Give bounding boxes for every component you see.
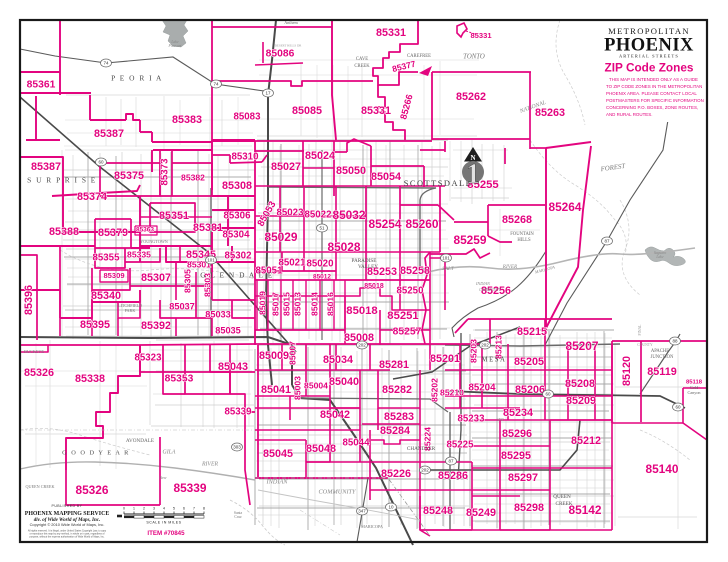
svg-text:60: 60	[545, 392, 551, 397]
svg-text:85203: 85203	[468, 339, 478, 363]
svg-text:85004: 85004	[304, 380, 328, 390]
svg-text:85309: 85309	[103, 271, 124, 280]
svg-text:85262: 85262	[456, 91, 486, 103]
svg-text:YOUNGTOWN: YOUNGTOWN	[140, 239, 168, 244]
svg-text:85027: 85027	[271, 161, 301, 173]
svg-text:85226: 85226	[381, 468, 411, 480]
svg-text:85083: 85083	[234, 112, 262, 123]
svg-text:74: 74	[103, 61, 109, 66]
svg-text:ZIP Code Zones: ZIP Code Zones	[605, 61, 694, 75]
svg-text:Canyon: Canyon	[687, 390, 701, 395]
svg-text:85338: 85338	[75, 373, 105, 385]
svg-text:2: 2	[143, 507, 145, 511]
svg-text:85020: 85020	[307, 259, 334, 270]
svg-text:RIVER: RIVER	[201, 461, 219, 467]
svg-text:85306: 85306	[224, 211, 252, 222]
svg-text:INDIAN: INDIAN	[266, 478, 289, 485]
svg-text:85009: 85009	[259, 350, 289, 362]
svg-text:MESA: MESA	[482, 357, 507, 364]
svg-text:85339: 85339	[173, 481, 206, 495]
svg-text:85363: 85363	[136, 227, 154, 234]
svg-text:BUCKEYE: BUCKEYE	[24, 349, 44, 354]
svg-text:85201: 85201	[430, 353, 460, 365]
svg-text:COUNTY: COUNTY	[637, 343, 653, 347]
svg-text:85016: 85016	[325, 292, 335, 316]
svg-text:347: 347	[358, 509, 366, 514]
svg-text:New: New	[160, 476, 167, 480]
svg-text:85374: 85374	[77, 191, 107, 203]
svg-text:P E O R I A: P E O R I A	[111, 74, 163, 83]
svg-text:FOUNTAIN: FOUNTAIN	[510, 232, 534, 237]
svg-text:17: 17	[265, 91, 271, 96]
svg-text:85120: 85120	[621, 356, 633, 386]
svg-text:85395: 85395	[80, 319, 110, 331]
svg-text:85326: 85326	[24, 367, 54, 379]
svg-text:85254: 85254	[368, 217, 401, 231]
svg-text:VALLEY: VALLEY	[358, 264, 378, 270]
svg-text:85012: 85012	[313, 274, 331, 281]
svg-text:85233: 85233	[458, 414, 486, 425]
svg-text:85037: 85037	[169, 301, 195, 311]
svg-text:85048: 85048	[306, 443, 336, 455]
svg-text:85340: 85340	[91, 290, 121, 302]
svg-text:85142: 85142	[568, 503, 601, 517]
svg-text:85355: 85355	[93, 253, 121, 264]
svg-text:85260: 85260	[405, 217, 438, 231]
svg-text:10: 10	[388, 505, 394, 510]
svg-text:CAVE: CAVE	[356, 57, 368, 62]
svg-text:Cruz: Cruz	[234, 515, 242, 519]
svg-text:85310: 85310	[232, 152, 259, 163]
svg-text:COMMUNITY: COMMUNITY	[479, 288, 502, 292]
svg-text:ARTERIAL STREETS: ARTERIAL STREETS	[619, 54, 679, 59]
svg-text:85207: 85207	[565, 339, 598, 353]
svg-text:3: 3	[153, 507, 155, 511]
svg-text:S U R P R I S E: S U R P R I S E	[27, 176, 97, 185]
svg-text:1: 1	[466, 159, 480, 190]
svg-text:85383: 85383	[172, 114, 202, 126]
svg-text:85282: 85282	[382, 384, 412, 396]
svg-text:MARICOPA: MARICOPA	[361, 524, 383, 529]
svg-text:SER: SER	[496, 417, 504, 422]
svg-text:85268: 85268	[502, 214, 532, 226]
svg-text:SALT: SALT	[442, 266, 455, 272]
svg-text:THIS MAP IS INTENDED ONLY AS: THIS MAP IS INTENDED ONLY AS A GUIDE	[609, 77, 698, 82]
svg-text:85331: 85331	[361, 105, 391, 117]
svg-text:HILLS: HILLS	[517, 238, 531, 243]
svg-text:85297: 85297	[508, 472, 538, 484]
svg-text:DESERT HILLS DR: DESERT HILLS DR	[275, 44, 303, 48]
svg-text:SCALE IN MILES: SCALE IN MILES	[146, 521, 181, 525]
svg-text:85029: 85029	[264, 230, 297, 244]
svg-text:85212: 85212	[571, 435, 601, 447]
svg-text:85375: 85375	[114, 170, 144, 182]
svg-text:6: 6	[183, 507, 185, 511]
svg-text:Pleasant: Pleasant	[168, 44, 183, 48]
svg-text:PHOENIX: PHOENIX	[604, 36, 694, 56]
svg-text:G O O D Y E A R: G O O D Y E A R	[62, 449, 130, 456]
svg-text:85283: 85283	[384, 411, 414, 423]
svg-text:PHOENIX MAPPING SERVICE: PHOENIX MAPPING SERVICE	[25, 511, 110, 517]
svg-text:POSTMASTERS FOR SPECIFIC INF: POSTMASTERS FOR SPECIFIC INFORMATION	[606, 98, 704, 103]
svg-text:85204: 85204	[469, 383, 497, 394]
svg-text:87: 87	[448, 459, 454, 464]
svg-text:purpose, without the express a: purpose, without the express authorizati…	[30, 536, 105, 539]
svg-text:85307: 85307	[141, 272, 171, 284]
svg-text:85339: 85339	[225, 407, 253, 418]
svg-text:85022: 85022	[305, 210, 332, 221]
svg-text:85351: 85351	[159, 210, 189, 222]
svg-text:85032: 85032	[332, 208, 365, 222]
svg-text:60: 60	[675, 405, 681, 410]
svg-text:85119: 85119	[647, 366, 676, 378]
svg-text:1: 1	[133, 507, 135, 511]
svg-text:85373: 85373	[160, 158, 171, 186]
svg-text:85054: 85054	[371, 171, 401, 183]
svg-text:87: 87	[604, 239, 610, 244]
svg-text:85013: 85013	[292, 292, 302, 316]
svg-text:85387: 85387	[31, 161, 61, 173]
svg-text:85215: 85215	[517, 326, 547, 338]
svg-text:85035: 85035	[215, 325, 241, 335]
svg-text:8: 8	[203, 507, 205, 511]
svg-text:PUBLISHED BY: PUBLISHED BY	[52, 504, 83, 508]
svg-text:PINAL: PINAL	[638, 324, 642, 336]
svg-text:7: 7	[193, 507, 195, 511]
svg-text:85257: 85257	[393, 327, 422, 338]
svg-text:85263: 85263	[535, 107, 565, 119]
svg-text:60: 60	[98, 160, 104, 165]
svg-text:85140: 85140	[645, 462, 678, 476]
svg-text:PARK: PARK	[125, 308, 136, 313]
svg-text:85017: 85017	[270, 292, 280, 316]
svg-text:85258: 85258	[400, 265, 430, 277]
svg-text:85018: 85018	[346, 305, 377, 317]
svg-text:85387: 85387	[94, 128, 124, 140]
svg-text:85209: 85209	[566, 395, 596, 407]
svg-text:85326: 85326	[75, 483, 108, 497]
svg-text:85015: 85015	[281, 292, 291, 316]
svg-text:202: 202	[481, 343, 489, 348]
svg-text:85396: 85396	[23, 285, 35, 315]
svg-text:51: 51	[319, 226, 325, 231]
svg-text:85323: 85323	[135, 353, 163, 364]
svg-text:85305: 85305	[182, 269, 192, 293]
svg-text:QUEEN: QUEEN	[553, 494, 571, 500]
svg-text:SCOTTSDALE: SCOTTSDALE	[404, 179, 473, 188]
svg-text:CHANDLER: CHANDLER	[407, 446, 436, 452]
svg-text:85023: 85023	[277, 208, 305, 219]
svg-text:CONCERNING P.O. BOXES, ZONE: CONCERNING P.O. BOXES, ZONE ROUTES,	[606, 105, 698, 110]
svg-text:85014: 85014	[309, 292, 319, 316]
svg-text:85086: 85086	[266, 49, 295, 60]
svg-text:202: 202	[358, 343, 366, 348]
svg-text:85024: 85024	[305, 150, 335, 162]
svg-text:85392: 85392	[141, 320, 171, 332]
svg-text:85202: 85202	[429, 378, 439, 402]
svg-text:85003: 85003	[292, 376, 302, 400]
svg-text:85298: 85298	[514, 502, 544, 514]
svg-text:85381: 85381	[193, 222, 223, 234]
svg-text:85045: 85045	[263, 448, 293, 460]
svg-text:CREEK: CREEK	[555, 501, 572, 507]
svg-text:303: 303	[233, 445, 241, 450]
svg-text:85206: 85206	[515, 384, 545, 396]
svg-text:APACHE: APACHE	[651, 349, 669, 354]
svg-text:4: 4	[163, 507, 165, 511]
svg-text:85018: 85018	[364, 283, 384, 290]
svg-text:85208: 85208	[565, 378, 595, 390]
svg-text:85028: 85028	[327, 240, 360, 254]
svg-text:85251: 85251	[387, 310, 418, 322]
svg-text:CAREFREE: CAREFREE	[407, 54, 431, 59]
svg-text:85281: 85281	[379, 359, 409, 371]
svg-text:85042: 85042	[320, 409, 350, 421]
svg-text:85379: 85379	[98, 227, 128, 239]
svg-text:85284: 85284	[380, 425, 410, 437]
svg-text:85259: 85259	[453, 233, 486, 247]
svg-text:85034: 85034	[323, 354, 353, 366]
svg-text:85249: 85249	[466, 507, 496, 519]
svg-text:TONTO: TONTO	[463, 54, 485, 61]
svg-text:TO ZIP CODE ZONES IN THE METR: TO ZIP CODE ZONES IN THE METROPOLITAN	[606, 84, 702, 89]
svg-text:85248: 85248	[423, 505, 453, 517]
svg-text:AVONDALE: AVONDALE	[126, 438, 154, 444]
svg-text:85043: 85043	[218, 361, 248, 373]
svg-text:85331: 85331	[470, 31, 492, 40]
svg-text:85295: 85295	[501, 450, 531, 462]
svg-text:COMMUNITY: COMMUNITY	[318, 488, 357, 495]
svg-text:METROPOLITAN: METROPOLITAN	[608, 26, 690, 36]
svg-text:0: 0	[123, 507, 125, 511]
svg-text:88: 88	[672, 339, 678, 344]
svg-text:85264: 85264	[548, 200, 581, 214]
svg-text:Lake: Lake	[655, 255, 664, 259]
svg-text:202: 202	[421, 468, 429, 473]
svg-text:85335: 85335	[127, 249, 151, 259]
svg-text:85050: 85050	[336, 165, 366, 177]
svg-text:85331: 85331	[376, 27, 406, 39]
svg-text:INDIAN: INDIAN	[475, 281, 490, 286]
svg-text:Copyright © 2010 Wide World o: Copyright © 2010 Wide World of Maps, Inc…	[30, 522, 105, 527]
svg-text:85021: 85021	[279, 258, 307, 269]
svg-text:ITEM #70845: ITEM #70845	[147, 530, 185, 537]
svg-text:85286: 85286	[438, 470, 468, 482]
svg-text:85210: 85210	[440, 387, 464, 397]
svg-text:85040: 85040	[329, 376, 359, 388]
svg-text:85382: 85382	[181, 172, 205, 182]
svg-text:85234: 85234	[503, 407, 533, 419]
svg-text:85205: 85205	[514, 356, 544, 368]
svg-text:85296: 85296	[502, 428, 532, 440]
svg-text:101: 101	[207, 258, 215, 263]
svg-text:85213: 85213	[493, 335, 503, 359]
svg-text:85041: 85041	[261, 384, 291, 396]
svg-text:PHOENIX AREA. PLEASE CONT: PHOENIX AREA. PLEASE CONTACT LOCAL	[606, 91, 697, 96]
svg-text:85308: 85308	[222, 180, 252, 192]
svg-text:85353: 85353	[165, 374, 194, 385]
svg-text:101: 101	[442, 256, 450, 261]
svg-text:85304: 85304	[223, 230, 251, 241]
svg-text:AND RURAL ROUTES.: AND RURAL ROUTES.	[606, 112, 652, 117]
svg-text:85085: 85085	[292, 105, 322, 117]
svg-text:GILA: GILA	[163, 449, 176, 455]
svg-text:85250: 85250	[397, 286, 424, 297]
svg-text:85033: 85033	[205, 309, 231, 319]
svg-text:CREEK: CREEK	[354, 64, 370, 69]
svg-text:85361: 85361	[27, 80, 56, 91]
svg-text:JUNCTION: JUNCTION	[651, 355, 675, 360]
svg-text:85044: 85044	[343, 438, 371, 449]
svg-text:85225: 85225	[447, 440, 475, 451]
svg-text:74: 74	[213, 82, 219, 87]
svg-text:85388: 85388	[49, 226, 79, 238]
svg-text:QUEEN CREEK: QUEEN CREEK	[26, 484, 55, 489]
svg-text:G L E N D A L E: G L E N D A L E	[200, 271, 273, 280]
svg-text:85019: 85019	[257, 291, 267, 315]
svg-text:85007: 85007	[287, 341, 297, 365]
svg-text:RIVER: RIVER	[502, 264, 518, 270]
svg-text:85302: 85302	[225, 251, 252, 262]
svg-text:5: 5	[173, 507, 175, 511]
